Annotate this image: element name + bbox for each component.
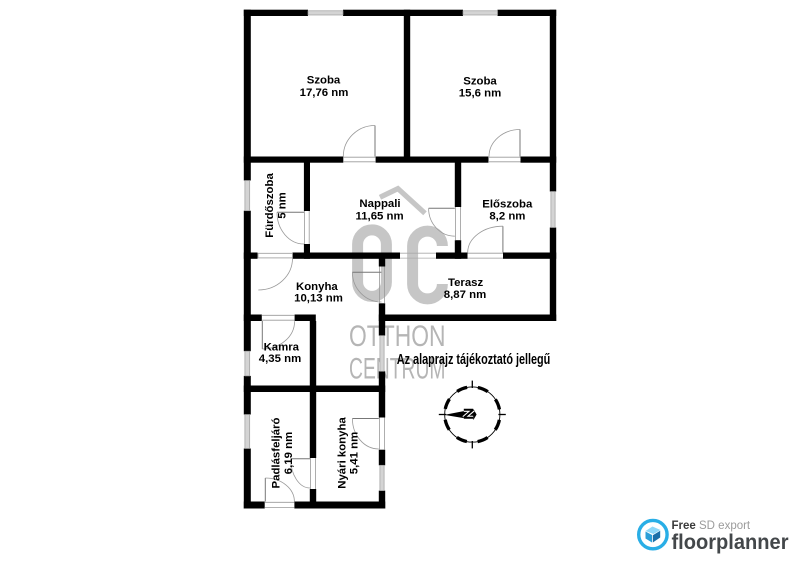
svg-text:Konyha: Konyha — [296, 281, 338, 293]
svg-text:10,13 nm: 10,13 nm — [294, 293, 343, 305]
svg-text:OTTHON: OTTHON — [349, 320, 446, 353]
svg-text:Kamra: Kamra — [264, 341, 300, 353]
svg-text:15,6 nm: 15,6 nm — [459, 88, 501, 100]
svg-text:Terasz: Terasz — [448, 277, 484, 289]
svg-text:Szoba: Szoba — [307, 75, 341, 87]
svg-text:Nyári konyha: Nyári konyha — [336, 417, 348, 489]
svg-text:5,41 nm: 5,41 nm — [349, 432, 361, 474]
svg-text:Fürdőszoba: Fürdőszoba — [264, 173, 276, 238]
svg-text:Előszoba: Előszoba — [482, 198, 533, 210]
svg-text:4,35 nm: 4,35 nm — [259, 353, 301, 365]
svg-text:Padlásfeljáró: Padlásfeljáró — [271, 418, 283, 489]
svg-text:Az alaprajz tájékoztató jelleg: Az alaprajz tájékoztató jellegű — [397, 352, 551, 368]
svg-text:8,2 nm: 8,2 nm — [489, 211, 525, 223]
svg-text:17,76 nm: 17,76 nm — [300, 87, 349, 99]
svg-text:5 nm: 5 nm — [276, 192, 288, 219]
svg-text:Nappali: Nappali — [359, 198, 400, 210]
svg-text:Szoba: Szoba — [463, 75, 497, 87]
svg-text:floorplanner: floorplanner — [672, 530, 790, 554]
svg-text:11,65 nm: 11,65 nm — [356, 210, 404, 222]
svg-text:6,19 nm: 6,19 nm — [283, 432, 295, 474]
svg-text:8,87 nm: 8,87 nm — [444, 289, 486, 301]
